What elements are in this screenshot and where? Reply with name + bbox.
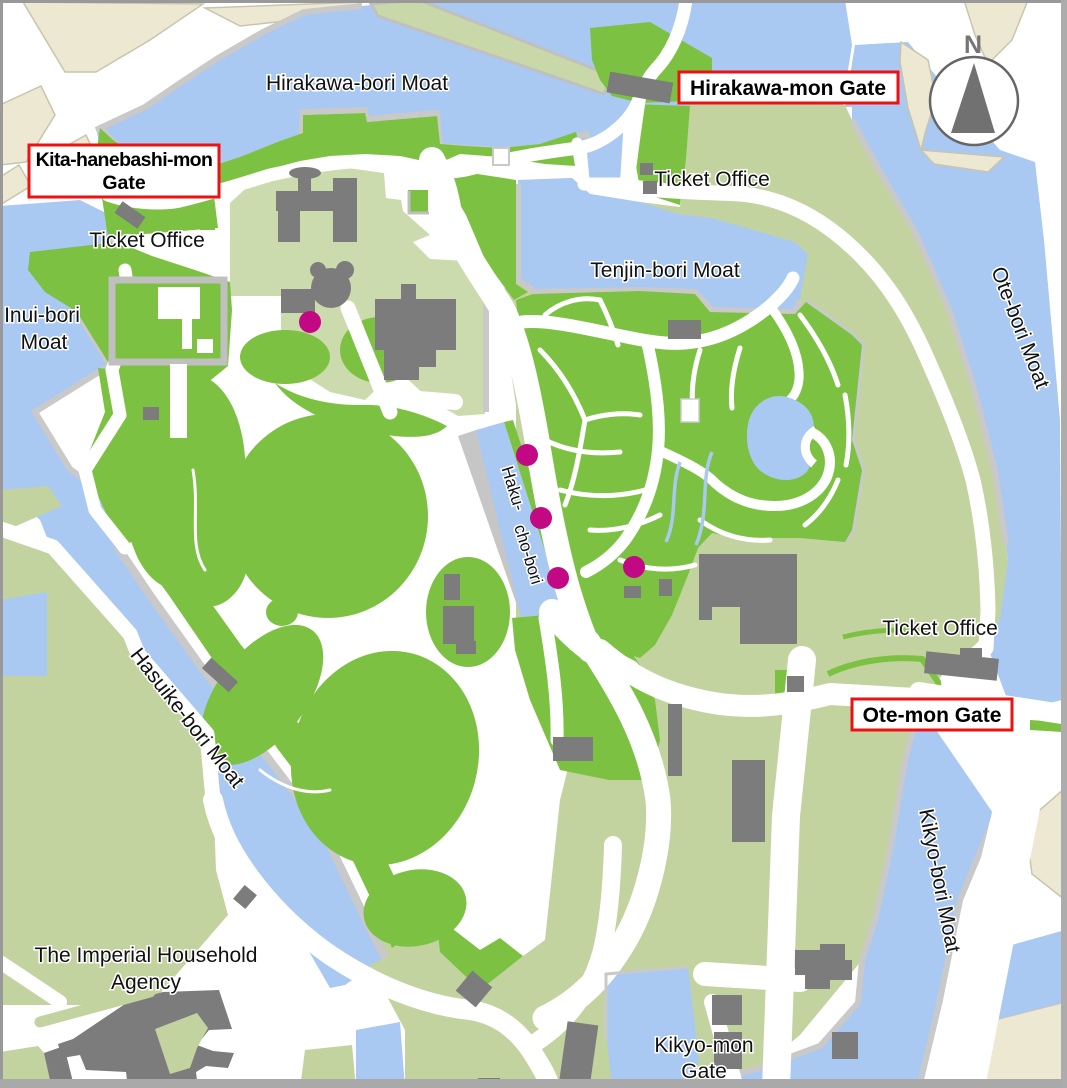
svg-text:Tenjin-bori Moat: Tenjin-bori Moat [590, 259, 740, 282]
svg-text:Inui-bori: Inui-bori [4, 304, 80, 327]
svg-text:Hirakawa-bori Moat: Hirakawa-bori Moat [266, 72, 448, 95]
svg-text:Kikyo-mon: Kikyo-mon [654, 1034, 753, 1057]
svg-text:N: N [964, 31, 982, 59]
svg-text:The Imperial Household: The Imperial Household [35, 944, 258, 967]
svg-text:Agency: Agency [111, 971, 182, 994]
svg-text:Ticket Office: Ticket Office [882, 617, 998, 640]
svg-text:Hirakawa-mon Gate: Hirakawa-mon Gate [690, 77, 886, 100]
svg-text:Moat: Moat [21, 331, 68, 354]
svg-text:Ote-mon Gate: Ote-mon Gate [863, 704, 1002, 727]
svg-text:Gate: Gate [102, 172, 146, 194]
svg-text:Ticket Office: Ticket Office [89, 229, 205, 252]
svg-text:Kita-hanebashi-mon: Kita-hanebashi-mon [36, 149, 213, 171]
svg-text:Ticket Office: Ticket Office [654, 168, 770, 191]
